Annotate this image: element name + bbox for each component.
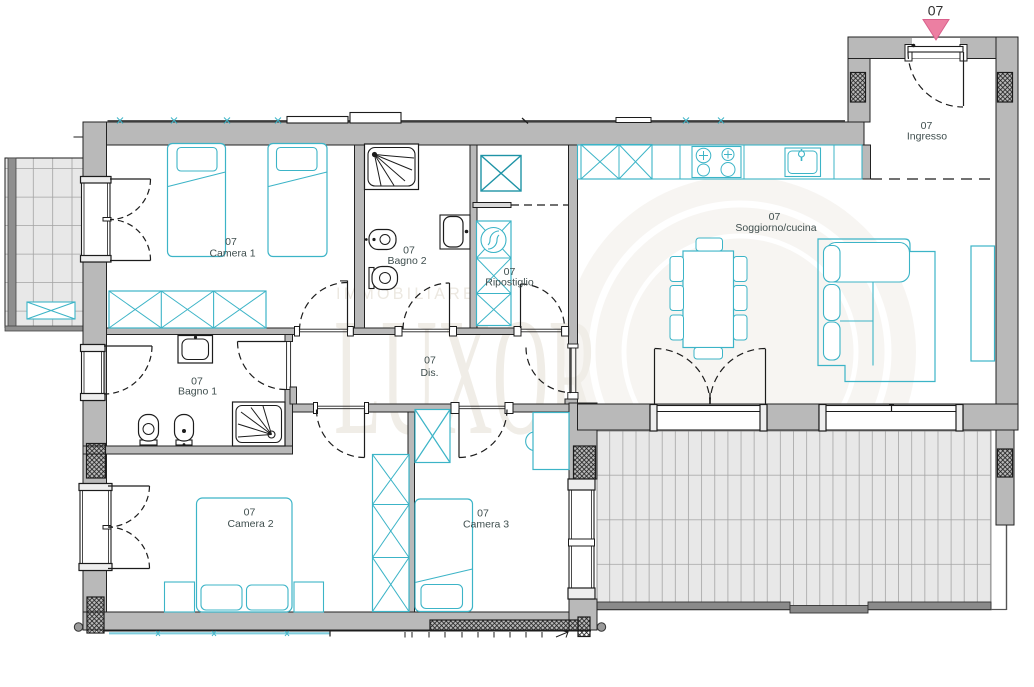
svg-text:07: 07 [225,236,237,248]
svg-text:Camera 3: Camera 3 [463,519,509,531]
svg-text:07: 07 [424,355,436,367]
svg-text:07: 07 [928,3,944,19]
svg-text:Ripostiglio: Ripostiglio [485,277,534,289]
svg-text:Ingresso: Ingresso [907,131,947,143]
svg-text:Camera 1: Camera 1 [209,248,255,260]
svg-text:Bagno 1: Bagno 1 [178,385,217,397]
svg-text:Dis.: Dis. [420,367,438,379]
svg-text:Soggiorno/cucina: Soggiorno/cucina [735,222,816,234]
svg-text:07: 07 [244,507,256,519]
svg-text:Camera 2: Camera 2 [227,518,273,530]
svg-text:Bagno 2: Bagno 2 [387,255,426,267]
